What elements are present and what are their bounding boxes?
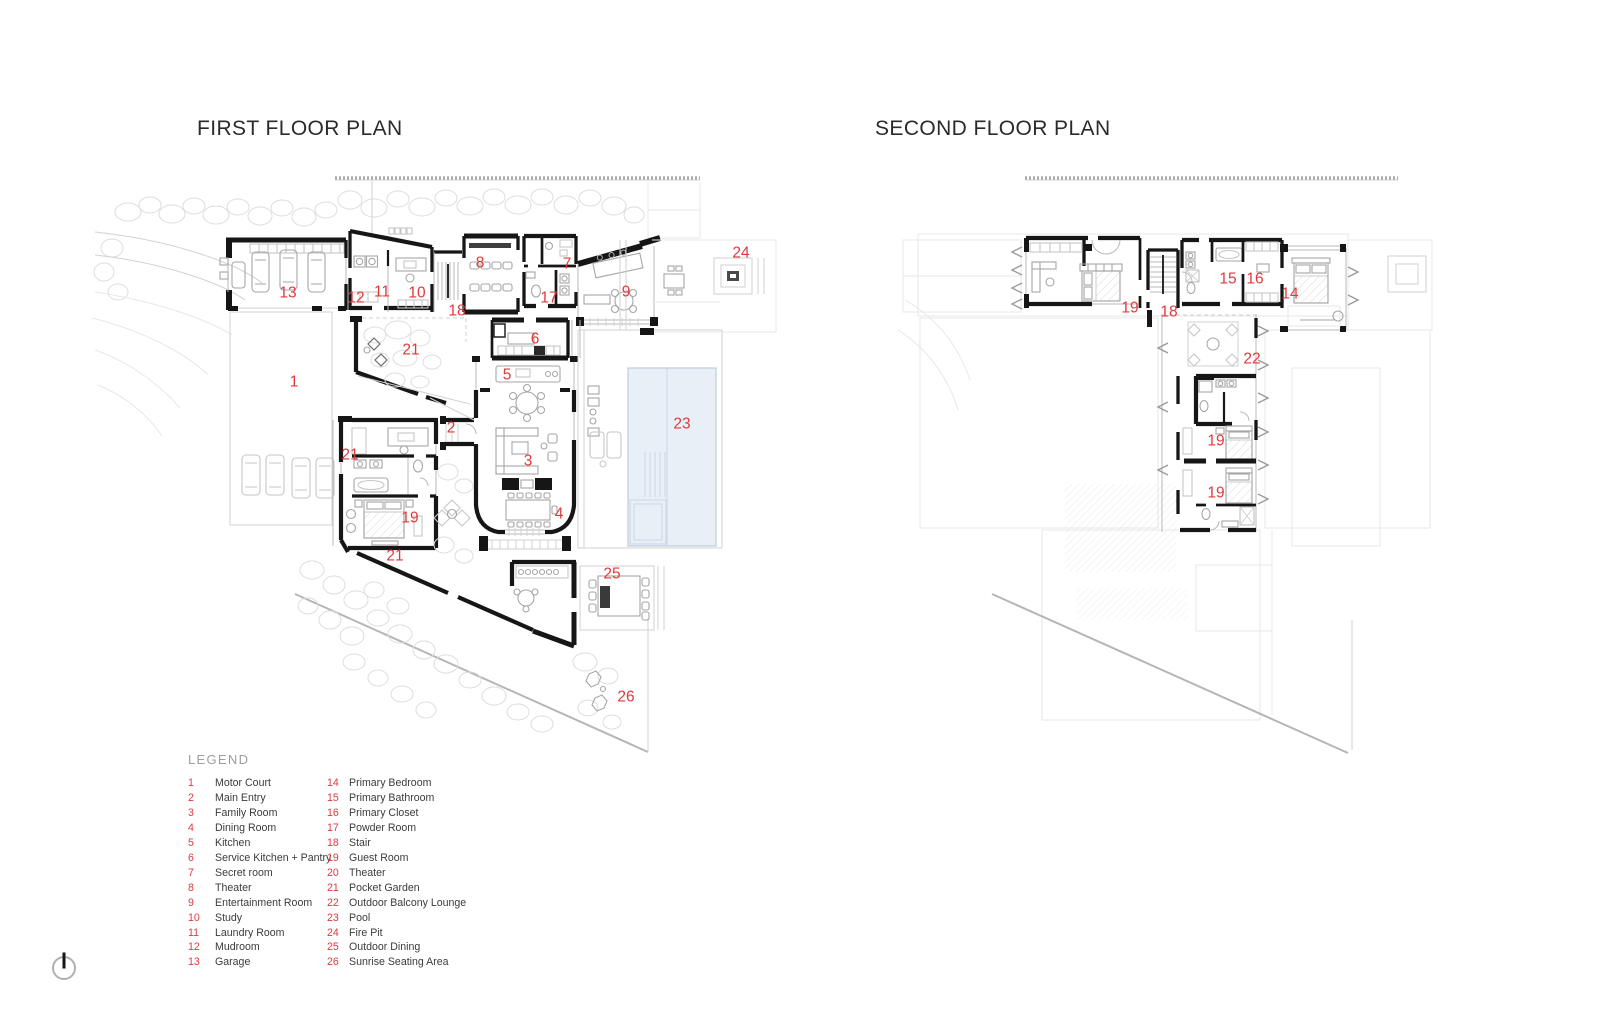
legend-item-number: 6	[188, 851, 215, 866]
room-number-label: 19	[1207, 485, 1224, 502]
legend-item-name: Outdoor Dining	[349, 940, 420, 955]
room-number-label: 18	[1160, 304, 1177, 321]
legend-item-number: 7	[188, 866, 215, 881]
legend-item-name: Mudroom	[215, 940, 260, 955]
legend-item: 5Kitchen	[188, 836, 327, 851]
legend-column-2: 14Primary Bedroom15Primary Bathroom16Pri…	[327, 776, 466, 970]
room-number-label: 23	[673, 416, 690, 433]
legend-item: 25Outdoor Dining	[327, 940, 466, 955]
room-number-label: 8	[476, 255, 485, 272]
room-number-label: 9	[622, 284, 631, 301]
guest-suite-first	[333, 416, 438, 552]
legend-item-number: 13	[188, 955, 215, 970]
legend-item-number: 16	[327, 806, 349, 821]
legend-item-name: Laundry Room	[215, 926, 285, 941]
room-number-label: 25	[603, 566, 620, 583]
legend-item: 7Secret room	[188, 866, 327, 881]
legend-item-name: Motor Court	[215, 776, 271, 791]
legend-item-name: Family Room	[215, 806, 277, 821]
legend-item-name: Theater	[215, 881, 252, 896]
legend-item-number: 12	[188, 940, 215, 955]
terrace-firepit	[620, 240, 776, 332]
legend-item: 10Study	[188, 911, 327, 926]
legend-item-number: 15	[327, 791, 349, 806]
legend-item-name: Service Kitchen + Pantry	[215, 851, 331, 866]
legend-item-number: 8	[188, 881, 215, 896]
legend-item-number: 23	[327, 911, 349, 926]
legend-item-number: 19	[327, 851, 349, 866]
legend-columns: 1Motor Court2Main Entry3Family Room4Dini…	[188, 776, 466, 970]
room-number-label: 26	[617, 689, 634, 706]
pocket-garden-upper	[350, 316, 474, 420]
legend-item-name: Primary Closet	[349, 806, 418, 821]
motor-court	[230, 312, 334, 525]
legend-item: 22Outdoor Balcony Lounge	[327, 896, 466, 911]
room-entertainment	[576, 238, 660, 326]
legend-item: 12Mudroom	[188, 940, 327, 955]
legend-item: 14Primary Bedroom	[327, 776, 466, 791]
legend-item: 3Family Room	[188, 806, 327, 821]
legend-item: 11Laundry Room	[188, 926, 327, 941]
room-number-label: 19	[1207, 433, 1224, 450]
legend-column-1: 1Motor Court2Main Entry3Family Room4Dini…	[188, 776, 327, 970]
room-number-label: 6	[531, 331, 540, 348]
legend-item-name: Garage	[215, 955, 250, 970]
legend-item: 9Entertainment Room	[188, 896, 327, 911]
room-number-label: 21	[402, 342, 419, 359]
legend-item-number: 26	[327, 955, 349, 970]
legend-item-number: 18	[327, 836, 349, 851]
room-number-label: 10	[408, 285, 426, 302]
north-arrow-icon	[53, 953, 75, 980]
legend-item-name: Pool	[349, 911, 370, 926]
parterre-garden	[434, 464, 473, 563]
legend-item-name: Outdoor Balcony Lounge	[349, 896, 466, 911]
legend-item-number: 4	[188, 821, 215, 836]
legend-item-name: Sunrise Seating Area	[349, 955, 449, 970]
legend-item-name: Theater	[349, 866, 386, 881]
legend-item-name: Powder Room	[349, 821, 416, 836]
legend-item-number: 21	[327, 881, 349, 896]
room-number-label: 15	[1219, 271, 1236, 288]
legend-item-number: 5	[188, 836, 215, 851]
room-number-label: 13	[279, 285, 296, 302]
room-number-label: 7	[563, 256, 572, 273]
legend-item-number: 11	[188, 926, 215, 941]
room-number-label: 24	[732, 245, 750, 262]
legend-item-number: 20	[327, 866, 349, 881]
room-number-label: 18	[448, 303, 465, 320]
room-theater-first	[464, 236, 518, 312]
legend-item-name: Secret room	[215, 866, 273, 881]
legend-item-number: 10	[188, 911, 215, 926]
legend-item: 4Dining Room	[188, 821, 327, 836]
legend-item: 26Sunrise Seating Area	[327, 955, 466, 970]
legend-item: 18Stair	[327, 836, 466, 851]
legend-item: 6Service Kitchen + Pantry	[188, 851, 327, 866]
legend-item: 16Primary Closet	[327, 806, 466, 821]
room-number-label: 14	[1281, 286, 1299, 303]
legend-item-name: Pocket Garden	[349, 881, 420, 896]
room-number-label: 11	[374, 284, 390, 301]
legend-item-number: 17	[327, 821, 349, 836]
room-number-label: 21	[386, 548, 403, 565]
legend-item-name: Study	[215, 911, 242, 926]
legend-item: 13Garage	[188, 955, 327, 970]
room-number-label: 22	[1243, 351, 1260, 368]
room-number-label: 16	[1246, 271, 1263, 288]
legend-item: 1Motor Court	[188, 776, 327, 791]
room-number-label: 5	[503, 367, 512, 384]
legend-item: 15Primary Bathroom	[327, 791, 466, 806]
legend-item: 23Pool	[327, 911, 466, 926]
pool-area	[578, 328, 722, 548]
legend-item-name: Stair	[349, 836, 371, 851]
legend-item: 19Guest Room	[327, 851, 466, 866]
legend-title: LEGEND	[188, 752, 466, 767]
legend-item-name: Primary Bathroom	[349, 791, 434, 806]
legend-item: 2Main Entry	[188, 791, 327, 806]
legend-item-name: Entertainment Room	[215, 896, 312, 911]
legend-item-number: 1	[188, 776, 215, 791]
room-number-label: 3	[524, 453, 533, 470]
legend-item-name: Primary Bedroom	[349, 776, 431, 791]
legend-item-number: 25	[327, 940, 349, 955]
legend-item-number: 3	[188, 806, 215, 821]
legend-item: 21Pocket Garden	[327, 881, 466, 896]
drawing-sheet: { "plans": { "first": { "title": "FIRST …	[0, 0, 1600, 1035]
room-number-label: 19	[401, 510, 418, 527]
room-number-label: 19	[1121, 300, 1138, 317]
motor-court-cars	[242, 455, 334, 498]
room-number-label: 4	[555, 506, 564, 523]
room-number-label: 21	[341, 447, 358, 464]
legend-item: 8Theater	[188, 881, 327, 896]
legend: LEGEND 1Motor Court2Main Entry3Family Ro…	[188, 752, 466, 970]
second-floor-plan	[898, 178, 1432, 753]
first-floor-plan	[92, 178, 776, 752]
legend-item: 17Powder Room	[327, 821, 466, 836]
legend-item-number: 2	[188, 791, 215, 806]
room-number-label: 1	[290, 374, 299, 391]
legend-item-number: 9	[188, 896, 215, 911]
legend-item-name: Fire Pit	[349, 926, 383, 941]
legend-item: 20Theater	[327, 866, 466, 881]
room-number-label: 12	[347, 290, 364, 307]
room-guest-suite-upper	[1012, 238, 1140, 309]
legend-item-number: 24	[327, 926, 349, 941]
legend-item-number: 14	[327, 776, 349, 791]
room-number-label: 17	[540, 290, 557, 307]
legend-item: 24Fire Pit	[327, 926, 466, 941]
legend-item-name: Main Entry	[215, 791, 266, 806]
room-number-label: 2	[447, 420, 456, 437]
site-context-second	[898, 178, 1432, 753]
legend-item-number: 22	[327, 896, 349, 911]
main-entry	[440, 416, 476, 450]
legend-item-name: Guest Room	[349, 851, 408, 866]
legend-item-name: Dining Room	[215, 821, 276, 836]
sunrise-seating	[586, 671, 607, 711]
legend-item-name: Kitchen	[215, 836, 250, 851]
